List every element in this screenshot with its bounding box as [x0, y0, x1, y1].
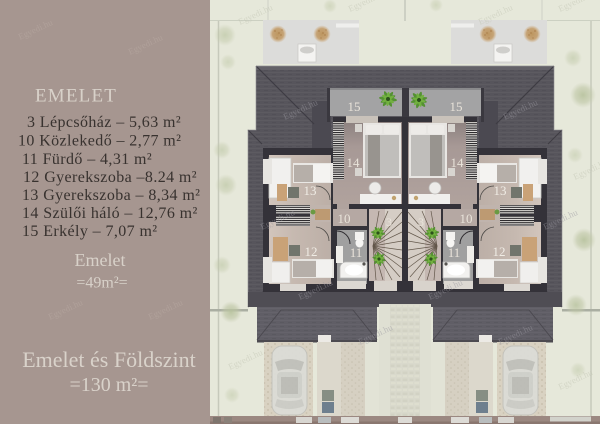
- svg-text:13: 13: [304, 183, 317, 198]
- svg-text:14 Szülői háló – 12,76 m²: 14 Szülői háló – 12,76 m²: [22, 205, 198, 222]
- svg-text:14: 14: [451, 155, 465, 170]
- svg-text:Emelet: Emelet: [75, 250, 126, 270]
- svg-text:15: 15: [450, 99, 463, 114]
- svg-text:11 Fürdő – 4,31 m²: 11 Fürdő – 4,31 m²: [22, 151, 152, 168]
- svg-text:=49m²=: =49m²=: [76, 275, 127, 292]
- svg-text:12: 12: [493, 244, 506, 259]
- svg-text:12 Gyerekszoba –8.24 m²: 12 Gyerekszoba –8.24 m²: [23, 169, 197, 186]
- svg-text:14: 14: [347, 155, 361, 170]
- svg-text:3 Lépcsőház – 5,63 m²: 3 Lépcsőház – 5,63 m²: [27, 114, 181, 131]
- svg-text:13 Gyerekszoba – 8,34 m²: 13 Gyerekszoba – 8,34 m²: [22, 187, 200, 204]
- svg-text:11: 11: [350, 245, 363, 260]
- svg-text:3: 3: [386, 215, 392, 229]
- svg-text:13: 13: [494, 183, 507, 198]
- svg-text:15: 15: [348, 99, 361, 114]
- svg-text:3: 3: [418, 215, 424, 229]
- svg-text:10: 10: [338, 211, 351, 226]
- svg-text:=130 m²=: =130 m²=: [69, 374, 148, 396]
- svg-text:EMELET: EMELET: [35, 86, 117, 107]
- svg-text:12: 12: [305, 244, 318, 259]
- svg-text:10: 10: [460, 211, 473, 226]
- svg-text:10 Közlekedő – 2,77 m²: 10 Közlekedő – 2,77 m²: [18, 133, 181, 150]
- svg-text:15 Erkély – 7,07 m²: 15 Erkély – 7,07 m²: [22, 223, 158, 240]
- svg-text:11: 11: [448, 245, 461, 260]
- svg-text:Emelet és Földszint: Emelet és Földszint: [22, 347, 196, 372]
